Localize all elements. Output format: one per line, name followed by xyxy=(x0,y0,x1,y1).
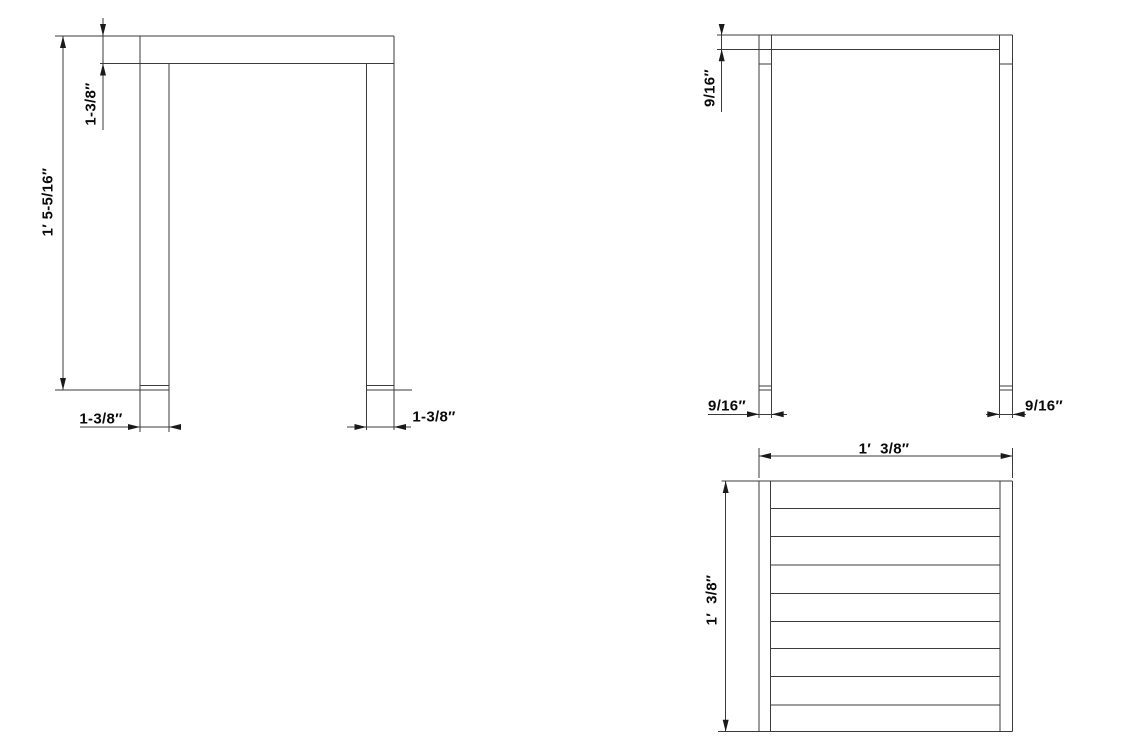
front-view-dimension-lines xyxy=(55,18,411,427)
top-overall-depth-label: 1′ 3/8″ xyxy=(705,575,720,626)
front-view xyxy=(55,18,412,432)
top-overall-width-label: 1′ 3/8″ xyxy=(859,442,910,457)
side-view-dimension-lines xyxy=(708,24,1026,414)
front-apron-height-label: 1-3/8″ xyxy=(84,82,99,125)
drawing-linework xyxy=(0,0,1126,751)
side-left-leg-width-label: 9/16″ xyxy=(708,399,746,414)
top-view-arrowheads xyxy=(723,453,1013,732)
side-right-leg-width-label: 9/16″ xyxy=(1025,399,1063,414)
front-view-arrowheads xyxy=(60,24,406,430)
top-view-object-lines xyxy=(759,481,1013,732)
side-view-arrowheads xyxy=(719,24,1025,417)
front-left-leg-width-label: 1-3/8″ xyxy=(79,412,122,427)
front-overall-height-label: 1′ 5-5/16″ xyxy=(41,168,56,237)
front-right-leg-width-label: 1-3/8″ xyxy=(412,410,455,425)
top-view xyxy=(718,448,1013,732)
side-view-object-lines xyxy=(717,35,1013,418)
side-top-thickness-label: 9/16″ xyxy=(703,69,718,107)
side-view xyxy=(708,24,1026,418)
drawing-canvas: 1′ 5-5/16″ 1-3/8″ 1-3/8″ 1-3/8″ 9/16″ 9/… xyxy=(0,0,1126,751)
front-view-object-lines xyxy=(55,36,412,432)
top-view-dimension-lines xyxy=(718,448,1013,732)
